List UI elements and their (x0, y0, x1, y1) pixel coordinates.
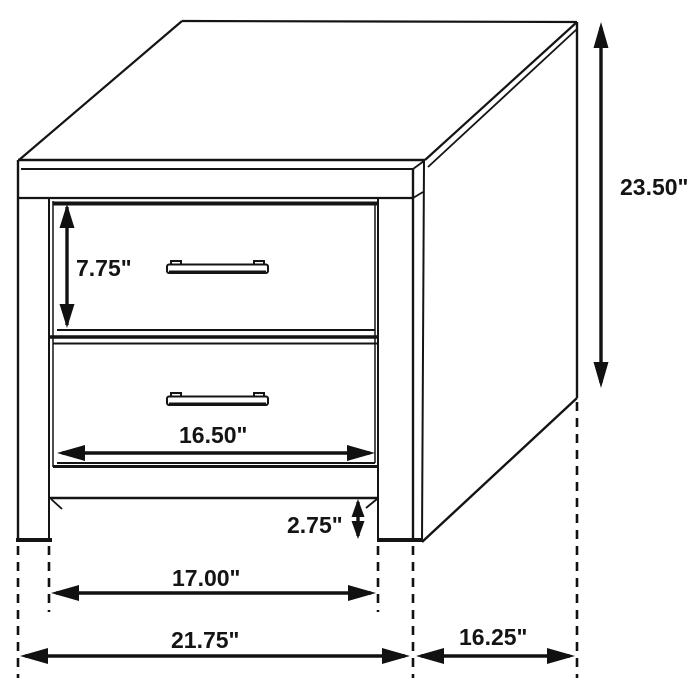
diagram-canvas: 7.75" 16.50" 2.75" 17.00" 21.75" 16.25" … (0, 0, 700, 700)
nightstand-line-drawing (0, 0, 700, 700)
dim-label-overall-height: 23.50" (620, 176, 688, 199)
dim-label-drawer-height: 7.75" (76, 257, 132, 280)
dim-label-drawer-width: 16.50" (179, 424, 247, 447)
dim-label-leg-span: 17.00" (172, 567, 240, 590)
dim-arrow-overall-depth (416, 648, 575, 664)
dim-label-leg-height: 2.75" (287, 514, 343, 537)
dim-label-overall-width: 21.75" (171, 629, 239, 652)
dim-arrow-overall-height (594, 22, 609, 388)
dim-label-overall-depth: 16.25" (459, 626, 527, 649)
